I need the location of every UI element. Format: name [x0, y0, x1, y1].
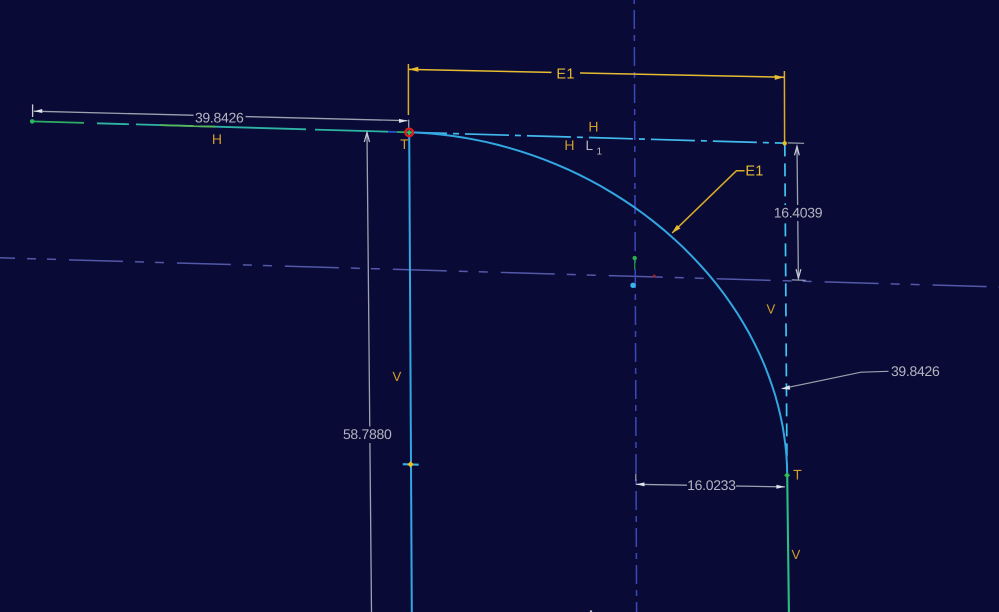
svg-text:H: H [588, 119, 598, 135]
svg-text:L: L [585, 138, 593, 153]
svg-text:H: H [564, 137, 574, 153]
svg-text:39.8426: 39.8426 [891, 363, 940, 379]
svg-text:39.8426: 39.8426 [195, 110, 244, 126]
svg-text:58.7880: 58.7880 [343, 426, 392, 442]
svg-text:T: T [793, 467, 802, 483]
svg-text:H: H [212, 131, 222, 147]
svg-text:V: V [767, 302, 776, 317]
svg-text:T: T [400, 136, 409, 152]
svg-text:16.0233: 16.0233 [687, 477, 736, 493]
svg-text:E1: E1 [745, 164, 763, 180]
svg-text:E1: E1 [556, 67, 574, 83]
svg-text:1: 1 [596, 147, 602, 158]
svg-text:V: V [393, 369, 402, 384]
svg-text:V: V [792, 547, 801, 562]
svg-text:16.4039: 16.4039 [774, 204, 823, 220]
